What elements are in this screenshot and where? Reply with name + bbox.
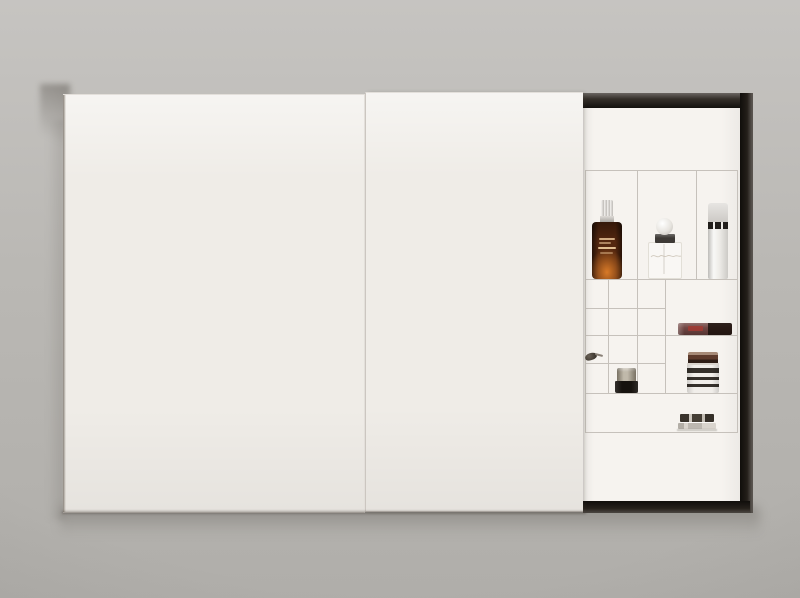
mini-jar-cap	[617, 368, 636, 381]
serum-label-text-line	[599, 238, 615, 240]
serum-dropper-cap	[601, 200, 613, 217]
mini-cell	[637, 335, 666, 364]
lip-gloss-tube	[678, 323, 732, 335]
pump-bottle-band	[708, 222, 728, 229]
mini-jar-body	[615, 381, 638, 393]
door-bottom-shadow	[62, 511, 586, 514]
pump-bottle-body	[708, 229, 728, 279]
mini-cell	[637, 363, 666, 394]
mini-cell	[608, 335, 638, 364]
round-tin-edge	[680, 414, 714, 422]
perfume-ghost-body	[648, 242, 682, 279]
round-tin-shadow	[677, 429, 717, 431]
sliding-door-right	[365, 92, 583, 512]
box-frame-bottom	[583, 501, 750, 513]
mini-cell	[585, 363, 609, 394]
serum-label-text-line	[600, 252, 613, 254]
striped-jar-body	[687, 365, 719, 393]
pump-bottle-cap	[708, 203, 728, 223]
amber-serum-bottle	[592, 222, 622, 279]
box-frame-top	[583, 93, 753, 108]
serum-label-text-line	[598, 247, 616, 249]
lip-gloss-label	[688, 326, 703, 331]
box-frame-right	[740, 93, 753, 513]
door-left-edge	[63, 95, 66, 512]
mini-cell	[585, 308, 609, 336]
serum-label-text-line	[599, 242, 611, 244]
mini-cell	[608, 308, 638, 336]
mini-cell	[608, 279, 638, 309]
mini-cell	[637, 308, 666, 336]
mini-cell	[585, 279, 609, 309]
perfume-collar	[655, 234, 675, 243]
perfume-ball-cap	[656, 218, 673, 235]
product-photo-scene	[0, 0, 800, 598]
mini-cell	[637, 279, 666, 309]
script-signature-text	[650, 252, 682, 260]
sliding-door-left	[63, 94, 365, 513]
